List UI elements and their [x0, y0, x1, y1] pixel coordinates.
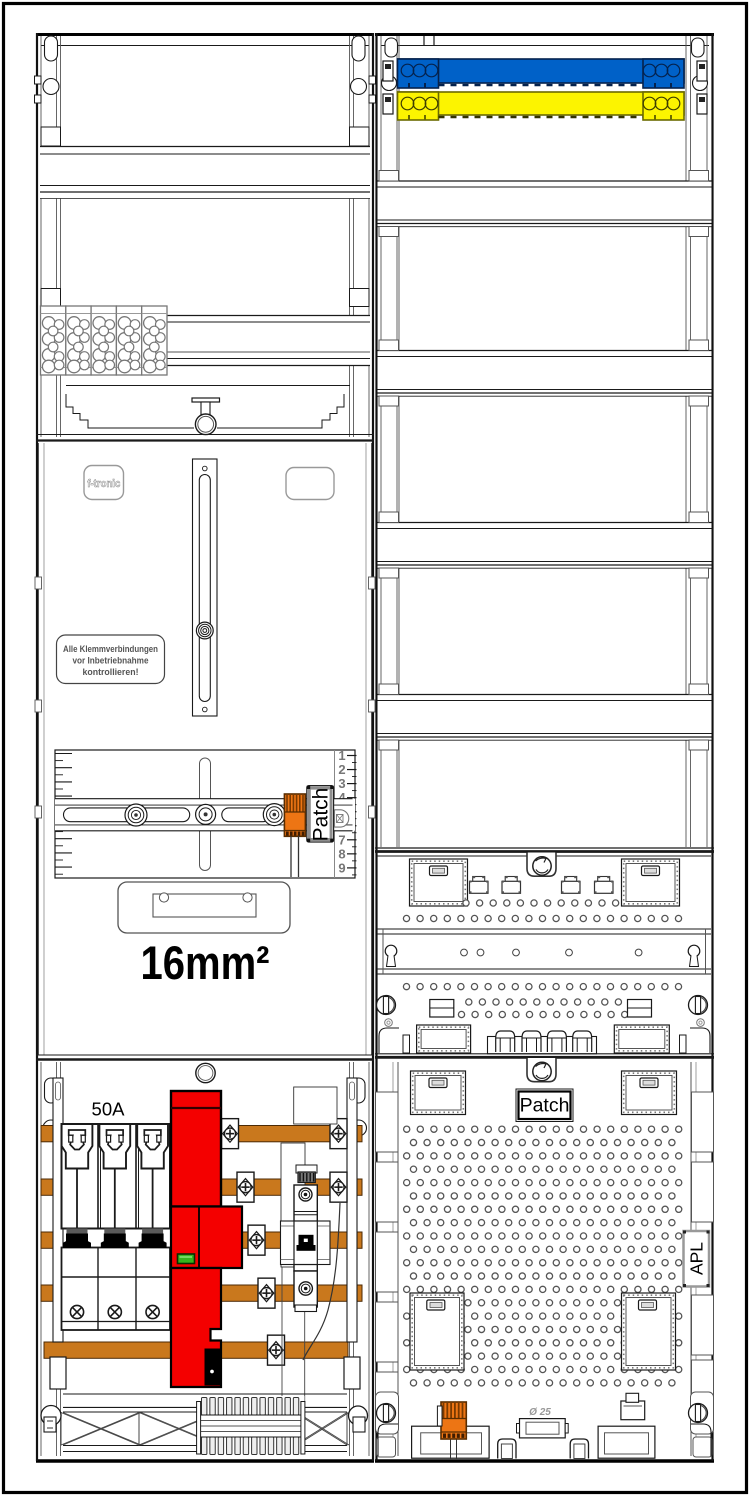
svg-text:Alle Klemmverbindungen: Alle Klemmverbindungen: [63, 644, 158, 654]
svg-text:Ø 25: Ø 25: [529, 1407, 551, 1418]
svg-text:f-tronic: f-tronic: [87, 478, 120, 490]
svg-text:1: 1: [338, 748, 345, 763]
svg-text:7: 7: [338, 832, 345, 847]
svg-text:Patch: Patch: [310, 788, 333, 842]
svg-text:3: 3: [338, 776, 345, 791]
svg-text:8: 8: [338, 846, 345, 861]
svg-text:APL: APL: [687, 1242, 707, 1275]
svg-text:kontrollieren!: kontrollieren!: [83, 667, 139, 677]
svg-text:50A: 50A: [92, 1099, 126, 1120]
svg-text:16mm²: 16mm²: [141, 936, 270, 989]
svg-text:Patch: Patch: [520, 1095, 570, 1117]
svg-text:2: 2: [338, 762, 345, 777]
svg-text:9: 9: [338, 860, 345, 875]
svg-text:vor Inbetriebnahme: vor Inbetriebnahme: [73, 656, 149, 666]
